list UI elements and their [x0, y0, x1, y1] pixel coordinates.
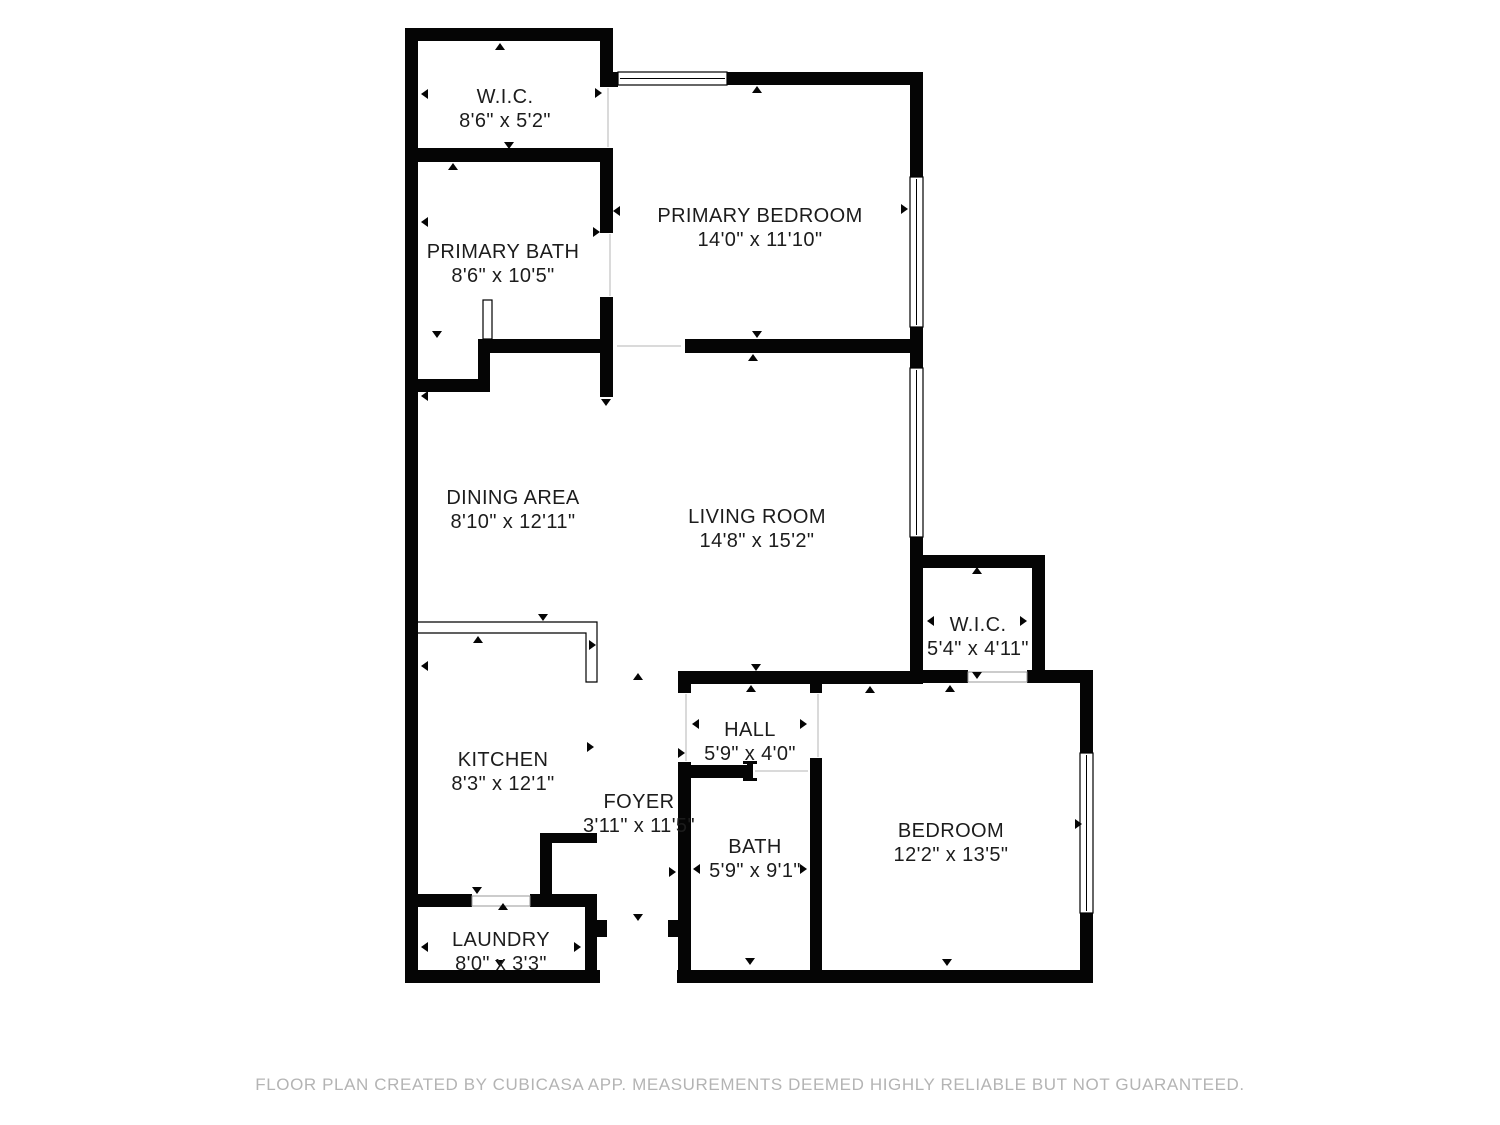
measure-arrow-icon	[752, 331, 762, 338]
wall	[910, 670, 968, 683]
measure-arrow-icon	[421, 89, 428, 99]
measure-arrow-icon	[448, 163, 458, 170]
room-label: LAUNDRY	[452, 929, 550, 951]
room-dimensions: 5'9" x 4'0"	[704, 743, 796, 765]
measure-arrow-icon	[473, 636, 483, 643]
door-leaf	[743, 778, 757, 781]
wall	[910, 72, 923, 177]
room-dimensions: 8'3" x 12'1"	[451, 773, 554, 795]
measure-arrow-icon	[432, 331, 442, 338]
room-dimensions: 8'6" x 5'2"	[459, 110, 551, 132]
measure-arrow-icon	[901, 204, 908, 214]
measure-arrow-icon	[595, 88, 602, 98]
door-leaf	[483, 300, 492, 339]
measure-arrow-icon	[942, 959, 952, 966]
room-label: W.I.C.	[477, 86, 534, 108]
footer-disclaimer: FLOOR PLAN CREATED BY CUBICASA APP. MEAS…	[255, 1075, 1245, 1094]
measure-arrow-icon	[748, 354, 758, 361]
room-label: BEDROOM	[898, 820, 1004, 842]
room-label: FOYER	[604, 791, 675, 813]
room-dimensions: 8'0" x 3'3"	[455, 953, 547, 975]
measure-arrow-icon	[745, 958, 755, 965]
wall	[540, 833, 552, 897]
measure-arrow-icon	[421, 942, 428, 952]
room-dimensions: 14'0" x 11'10"	[698, 229, 823, 251]
measure-arrow-icon	[633, 914, 643, 921]
wall	[597, 920, 607, 937]
wall	[727, 72, 923, 85]
wall	[668, 920, 678, 937]
door-threshold	[472, 896, 530, 906]
measure-arrow-icon	[678, 748, 685, 758]
room-dimensions: 5'4" x 4'11"	[927, 638, 1029, 660]
room-dimensions: 5'9" x 9'1"	[709, 860, 801, 882]
measure-arrow-icon	[504, 142, 514, 149]
measure-arrow-icon	[495, 43, 505, 50]
room-label: W.I.C.	[950, 614, 1007, 636]
measure-arrow-icon	[587, 742, 594, 752]
measure-arrow-icon	[972, 567, 982, 574]
measure-arrow-icon	[1020, 616, 1027, 626]
wall	[1032, 555, 1045, 683]
wall	[810, 684, 822, 693]
room-dimensions: 8'6" x 10'5"	[451, 265, 554, 287]
wall	[585, 894, 597, 983]
measure-arrow-icon	[421, 661, 428, 671]
measure-arrow-icon	[751, 664, 761, 671]
floor-plan-page: W.I.C.8'6" x 5'2"PRIMARY BATH8'6" x 10'5…	[0, 0, 1500, 1125]
room-label: LIVING ROOM	[688, 506, 826, 528]
wall	[678, 671, 923, 684]
floor-plan-svg: W.I.C.8'6" x 5'2"PRIMARY BATH8'6" x 10'5…	[0, 0, 1500, 1125]
room-dimensions: 8'10" x 12'11"	[451, 511, 576, 533]
wall	[405, 379, 490, 392]
wall	[1080, 683, 1093, 753]
wall	[1027, 670, 1093, 683]
room-label: BATH	[728, 836, 781, 858]
measure-arrow-icon	[692, 719, 699, 729]
wall	[405, 28, 613, 41]
measure-arrow-icon	[800, 719, 807, 729]
wall	[600, 72, 618, 87]
measure-arrow-icon	[927, 616, 934, 626]
measure-arrow-icon	[601, 399, 611, 406]
room-label: PRIMARY BEDROOM	[657, 205, 862, 227]
measure-arrow-icon	[865, 686, 875, 693]
room-dimensions: 3'11" x 11'5"	[583, 815, 695, 837]
measure-arrow-icon	[693, 864, 700, 874]
measure-arrow-icon	[613, 206, 620, 216]
measure-arrow-icon	[538, 614, 548, 621]
wall	[810, 758, 822, 970]
measure-arrow-icon	[633, 673, 643, 680]
wall	[910, 555, 1045, 568]
measure-arrow-icon	[421, 217, 428, 227]
room-label: PRIMARY BATH	[427, 241, 580, 263]
measure-arrow-icon	[752, 86, 762, 93]
measure-arrow-icon	[669, 867, 676, 877]
wall	[478, 339, 613, 353]
wall	[405, 28, 418, 983]
room-dimensions: 14'8" x 15'2"	[700, 530, 815, 552]
room-label: DINING AREA	[446, 487, 580, 509]
measure-arrow-icon	[574, 942, 581, 952]
wall	[685, 339, 923, 353]
wall	[678, 762, 691, 970]
wall	[677, 970, 1093, 983]
measure-arrow-icon	[472, 887, 482, 894]
kitchen-counter	[417, 622, 597, 682]
room-label: KITCHEN	[458, 749, 549, 771]
measure-arrow-icon	[593, 227, 600, 237]
measure-arrow-icon	[746, 685, 756, 692]
measure-arrow-icon	[421, 391, 428, 401]
wall	[678, 765, 748, 778]
wall	[910, 568, 923, 683]
wall	[405, 894, 472, 907]
measure-arrow-icon	[945, 685, 955, 692]
room-dimensions: 12'2" x 13'5"	[894, 844, 1009, 866]
wall	[405, 148, 613, 162]
measure-arrow-icon	[800, 864, 807, 874]
wall	[600, 148, 613, 233]
wall	[678, 684, 691, 693]
room-label: HALL	[724, 719, 776, 741]
